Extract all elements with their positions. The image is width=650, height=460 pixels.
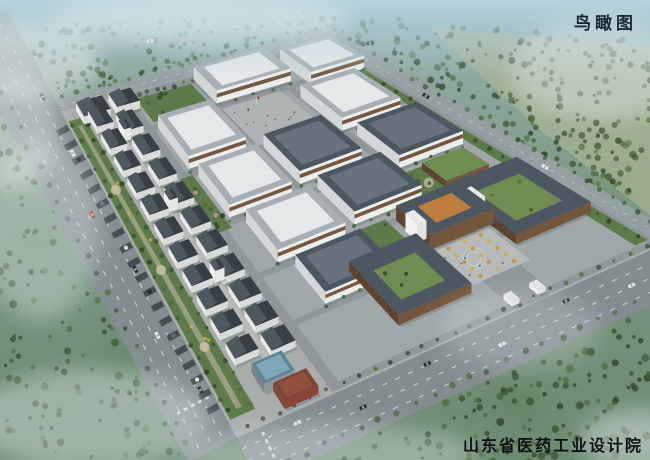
aerial-rendering-image: 鸟瞰图 山东省医药工业设计院 bbox=[0, 0, 650, 460]
masterplan-birdseye-scene bbox=[0, 0, 650, 460]
view-title-label: 鸟瞰图 bbox=[574, 9, 637, 34]
design-institute-label: 山东省医药工业设计院 bbox=[463, 432, 643, 456]
